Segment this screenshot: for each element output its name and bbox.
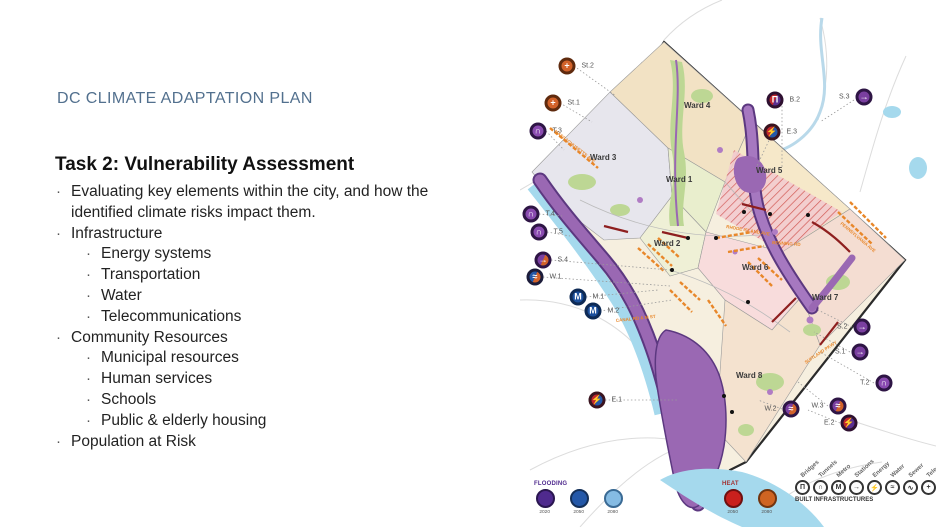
- streets-icon: +: [564, 62, 569, 71]
- bullet-icon: ·: [86, 244, 91, 265]
- water-icon: ≈: [789, 405, 794, 414]
- water-icon: ≈Water: [885, 480, 900, 495]
- heat-legend-title: HEAT: [722, 481, 778, 487]
- heat-legend: HEAT 2050 2080: [722, 481, 778, 515]
- station-icon: →: [858, 323, 867, 332]
- flood-2020-swatch: [536, 489, 555, 508]
- metro-icon: M: [574, 293, 582, 302]
- tunnel-icon: ∩: [881, 379, 888, 388]
- stations-icon: →Stations: [849, 480, 864, 495]
- marker-m2: MM.2: [585, 303, 602, 320]
- bullet-icon: ·: [86, 307, 91, 328]
- marker-st1: +St.1: [545, 95, 562, 112]
- energy-icon: ⚡: [843, 419, 854, 428]
- list-item: ·Human services: [55, 369, 485, 390]
- map-canvas: MASSACHUSETTS AVE CANAL RD & M ST RHODE …: [520, 0, 936, 527]
- list-item: ·Municipal resources: [55, 348, 485, 369]
- infrastructure-legend: ΠBridges ∩Tunnels MMetro →Stations ⚡Ener…: [795, 480, 936, 503]
- water-icon: ≈: [533, 273, 538, 282]
- metro-icon: MMetro: [831, 480, 846, 495]
- bullet-icon: ·: [86, 286, 91, 307]
- slide: { "slide": { "title": "DC CLIMATE ADAPTA…: [0, 0, 936, 527]
- legend-item: 2050: [722, 489, 744, 515]
- energy-icon: ⚡: [766, 128, 777, 137]
- bullet-icon: ·: [56, 328, 61, 349]
- page-title: DC CLIMATE ADAPTATION PLAN: [57, 90, 313, 108]
- tunnel-icon: ∩: [528, 210, 535, 219]
- dc-vulnerability-map: MASSACHUSETTS AVE CANAL RD & M ST RHODE …: [520, 0, 936, 527]
- streets-icon: +: [550, 99, 555, 108]
- telecom-icon: +Telecom: [921, 480, 936, 495]
- marker-t4: ∩T.4: [523, 206, 540, 223]
- marker-w2: ≈W.2: [783, 401, 800, 418]
- marker-s2: →S.2: [854, 319, 871, 336]
- bullet-icon: ·: [56, 432, 61, 453]
- slide-body: Task 2: Vulnerability Assessment ·Evalua…: [55, 154, 485, 452]
- flooding-legend: FLOODING 2020 2050 2080: [534, 481, 624, 515]
- marker-w1: ≈W.1: [527, 269, 544, 286]
- flooding-legend-title: FLOODING: [534, 481, 624, 487]
- bullet-icon: ·: [56, 224, 61, 245]
- flood-2080-swatch: [604, 489, 623, 508]
- ward-label: Ward 4: [684, 101, 711, 110]
- bullet-icon: ·: [86, 390, 91, 411]
- marker-s1: →S.1: [852, 344, 869, 361]
- list-item: ·Schools: [55, 390, 485, 411]
- energy-icon: ⚡: [591, 396, 602, 405]
- station-icon: →: [539, 256, 548, 265]
- list-item: ·Telecommunications: [55, 307, 485, 328]
- bullet-icon: ·: [86, 411, 91, 432]
- energy-icon: ⚡Energy: [867, 480, 882, 495]
- marker-t2: ∩T.2: [876, 375, 893, 392]
- list-item: ·Community Resources: [55, 328, 479, 349]
- list-item: ·Population at Risk: [55, 432, 479, 453]
- list-item: ·Water: [55, 286, 485, 307]
- list-item: ·Infrastructure: [55, 224, 479, 245]
- metro-icon: M: [589, 307, 597, 316]
- marker-s3: →S.3: [856, 89, 873, 106]
- bullet-list: ·Evaluating key elements within the city…: [55, 182, 485, 452]
- marker-e3: ⚡E.3: [764, 124, 781, 141]
- tunnel-icon: ∩: [536, 228, 543, 237]
- marker-e2: ⚡E.2: [841, 415, 858, 432]
- ward-label: Ward 8: [736, 371, 763, 380]
- station-icon: →: [860, 93, 869, 102]
- sewer-icon: ∿Sewer: [903, 480, 918, 495]
- heat-2080-swatch: [758, 489, 777, 508]
- ward-label: Ward 1: [666, 175, 693, 184]
- legend-item: 2020: [534, 489, 556, 515]
- heat-2050-swatch: [724, 489, 743, 508]
- tunnels-icon: ∩Tunnels: [813, 480, 828, 495]
- ward-label: Ward 5: [756, 166, 783, 175]
- bullet-icon: ·: [86, 265, 91, 286]
- infrastructure-legend-title: BUILT INFRASTRUCTURES: [795, 497, 936, 503]
- legend-item: 2080: [756, 489, 778, 515]
- bullet-icon: ·: [56, 182, 61, 203]
- tunnel-icon: ∩: [535, 127, 542, 136]
- marker-t5: ∩T.5: [531, 224, 548, 241]
- water-icon: ≈: [836, 402, 841, 411]
- bridge-icon: Π: [772, 96, 779, 105]
- list-item: ·Evaluating key elements within the city…: [55, 182, 479, 224]
- bullet-icon: ·: [86, 348, 91, 369]
- marker-t3: ∩T.3: [530, 123, 547, 140]
- marker-m1: MM.1: [570, 289, 587, 306]
- flood-2050-swatch: [570, 489, 589, 508]
- ward-label: Ward 2: [654, 239, 681, 248]
- list-item: ·Energy systems: [55, 244, 485, 265]
- legend-item: 2080: [602, 489, 624, 515]
- marker-s4: →S.4: [535, 252, 552, 269]
- marker-st2: +St.2: [559, 58, 576, 75]
- legend-item: 2050: [568, 489, 590, 515]
- ward-label: Ward 6: [742, 263, 769, 272]
- ward-label: Ward 7: [812, 293, 839, 302]
- bridges-icon: ΠBridges: [795, 480, 810, 495]
- ward-label: Ward 3: [590, 153, 617, 162]
- list-item: ·Public & elderly housing: [55, 411, 485, 432]
- marker-b2: ΠB.2: [767, 92, 784, 109]
- marker-e1: ⚡E.1: [589, 392, 606, 409]
- list-item: ·Transportation: [55, 265, 485, 286]
- task-heading: Task 2: Vulnerability Assessment: [55, 154, 485, 176]
- station-icon: →: [856, 348, 865, 357]
- marker-w3: ≈W.3: [830, 398, 847, 415]
- bullet-icon: ·: [86, 369, 91, 390]
